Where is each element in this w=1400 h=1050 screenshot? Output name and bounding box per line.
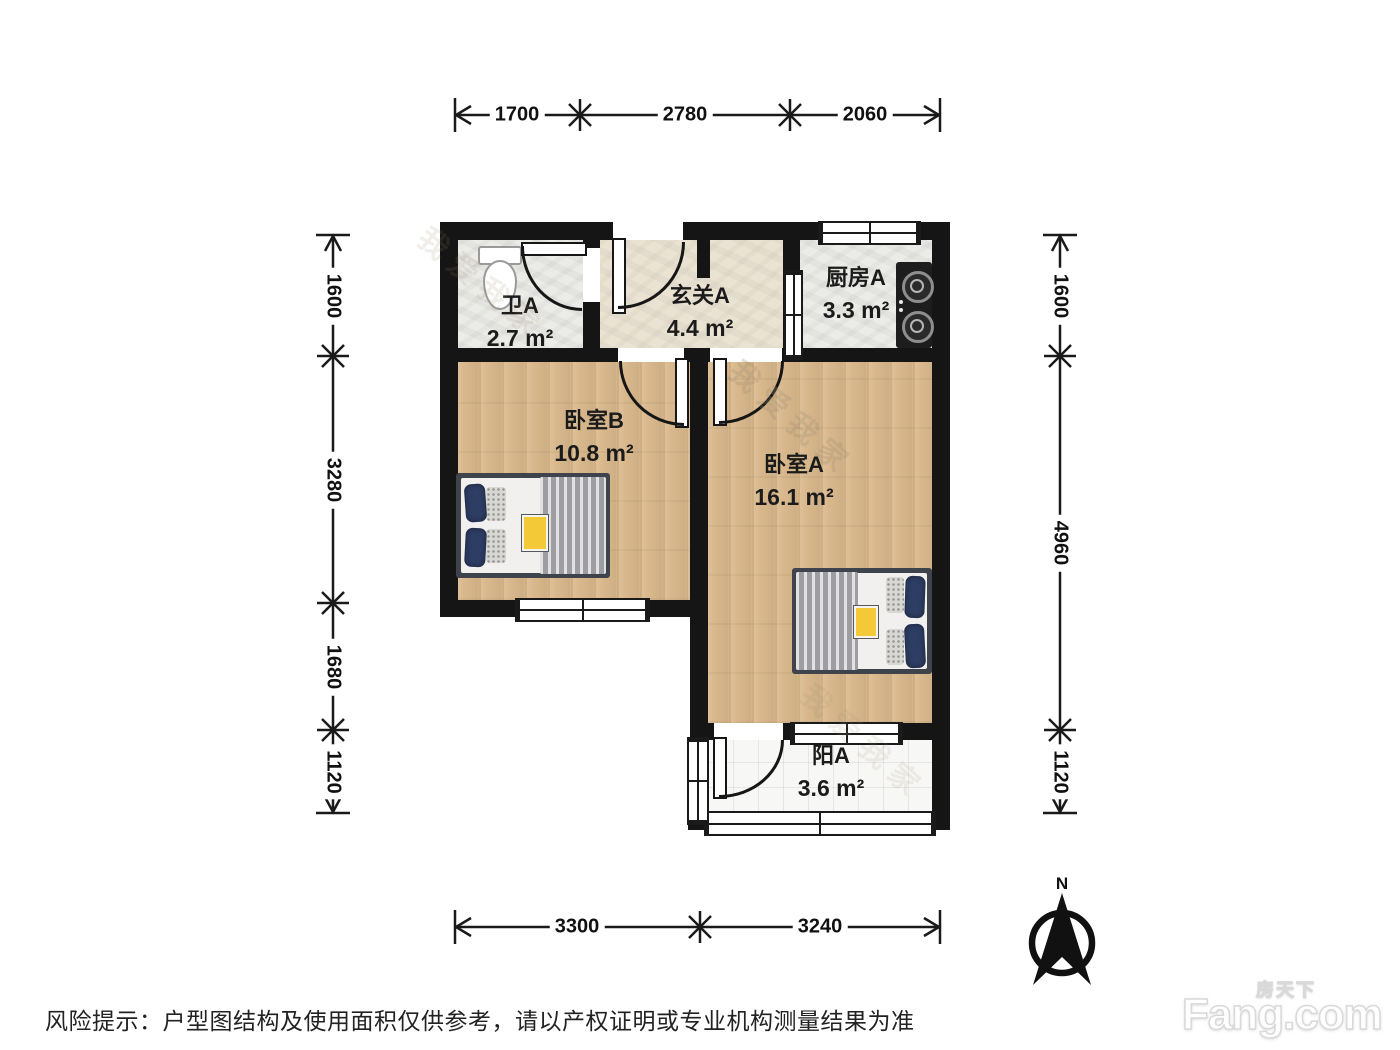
pillow: [464, 483, 488, 522]
dim-label-bottom-3300: 3300: [550, 916, 605, 939]
wall: [690, 600, 708, 740]
pillow: [904, 576, 925, 619]
room-name: 卫A: [487, 288, 553, 320]
stove-burner: [902, 271, 934, 303]
dim-label-top-1700: 1700: [490, 104, 545, 127]
wall: [690, 362, 708, 617]
balcony-side-window: [687, 737, 709, 825]
dim-label-right-1600: 1600: [1049, 268, 1072, 325]
bed-double-b: [456, 473, 610, 578]
pillow: [886, 577, 904, 613]
wall: [932, 222, 950, 830]
pillow: [486, 487, 506, 521]
room-label-bedroom-a: 卧室A 16.1 m²: [754, 447, 833, 511]
kitchen-pass-window: [784, 270, 803, 360]
room-area: 3.6 m²: [798, 775, 864, 802]
balcony-window: [704, 811, 936, 836]
bedroom-b-window: [515, 598, 650, 622]
book: [522, 515, 548, 551]
fang-logo-en: Fang.com: [1182, 990, 1382, 1040]
dim-label-left-1120: 1120: [322, 744, 345, 799]
room-area: 16.1 m²: [754, 484, 833, 511]
floorplan-canvas: 1700 2780 2060 3300 3240 1600 3280 1680 …: [0, 0, 1400, 1050]
room-name: 阳A: [798, 738, 864, 770]
room-label-bedroom-b: 卧室B 10.8 m²: [554, 403, 633, 467]
dim-label-left-3280: 3280: [322, 452, 345, 509]
room-label-entry: 玄关A 4.4 m²: [667, 278, 733, 342]
compass-icon: N: [1016, 872, 1108, 992]
room-label-kitchen: 厨房A 3.3 m²: [823, 260, 889, 324]
room-name: 卧室A: [754, 447, 833, 479]
wall: [782, 348, 950, 362]
wall: [440, 222, 613, 240]
room-name: 卧室B: [554, 403, 633, 435]
room-name: 厨房A: [823, 260, 889, 292]
dim-label-bottom-3240: 3240: [793, 916, 848, 939]
room-area: 2.7 m²: [487, 325, 553, 352]
stove-icon: [896, 262, 932, 348]
book: [854, 606, 878, 638]
dim-label-left-1680: 1680: [322, 639, 345, 696]
room-name: 玄关A: [667, 278, 733, 310]
wall: [783, 723, 790, 740]
room-area: 10.8 m²: [554, 440, 633, 467]
room-area: 4.4 m²: [667, 315, 733, 342]
bed-double-a: [792, 568, 932, 674]
stove-knob: [899, 308, 903, 312]
blanket: [796, 572, 858, 670]
dim-label-left-1600: 1600: [322, 268, 345, 325]
room-label-balcony: 阳A 3.6 m²: [798, 738, 864, 802]
stove-knob: [899, 300, 903, 304]
disclaimer-text: 风险提示：户型图结构及使用面积仅供参考，请以产权证明或专业机构测量结果为准: [45, 1002, 915, 1036]
kitchen-window: [818, 221, 921, 245]
pillow: [904, 624, 926, 669]
stove-burner: [902, 311, 934, 343]
dim-label-right-4960: 4960: [1049, 515, 1072, 572]
fang-logo: 房天下 Fang.com: [1182, 980, 1397, 1046]
compass-north-label: N: [1056, 874, 1068, 893]
pillow: [486, 529, 506, 563]
room-label-bathroom: 卫A 2.7 m²: [487, 288, 553, 352]
room-area: 3.3 m²: [823, 297, 889, 324]
wall-column: [697, 240, 710, 278]
dim-label-top-2780: 2780: [658, 104, 713, 127]
pillow: [886, 629, 904, 665]
pillow: [464, 527, 487, 567]
dim-label-top-2060: 2060: [838, 104, 893, 127]
blanket: [540, 477, 606, 574]
dim-label-right-1120: 1120: [1049, 744, 1072, 799]
